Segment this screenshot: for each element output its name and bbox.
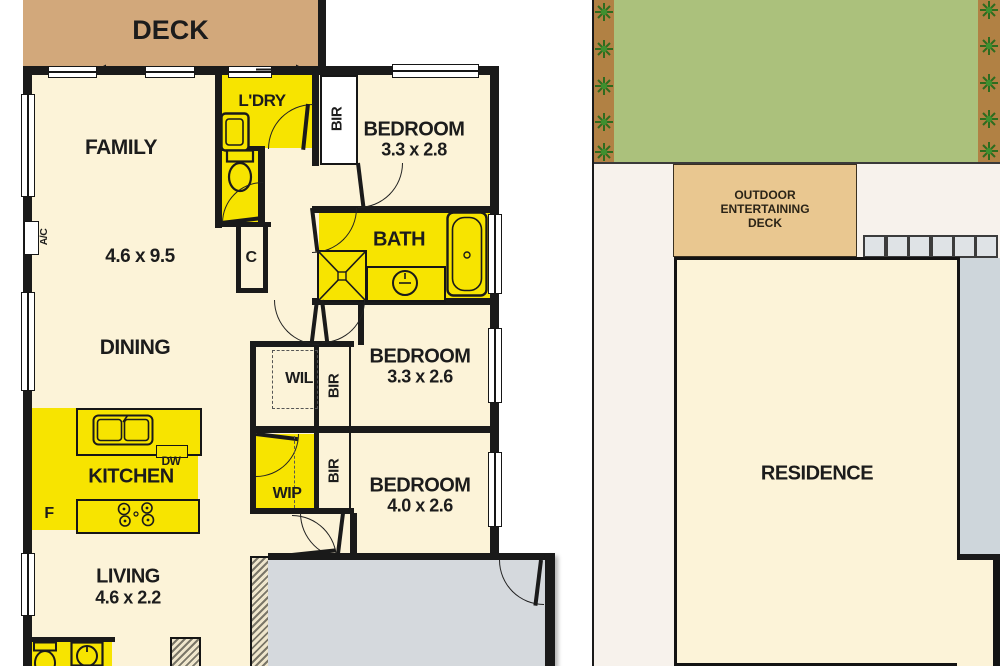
bottom-toilet-icon <box>30 641 60 666</box>
stepping-stone <box>908 235 931 258</box>
bedroom3-dims: 4.0 x 2.6 <box>387 496 453 517</box>
bedroom2-window <box>488 328 502 403</box>
lawn-area <box>594 0 1000 163</box>
shower-x-icon <box>319 252 365 300</box>
stepping-stone <box>863 235 886 258</box>
stepping-stone <box>953 235 976 258</box>
outdoor-deck-line3: DECK <box>673 216 857 230</box>
robe1-label: BIR <box>329 107 346 131</box>
dishwasher-label: DW <box>162 454 181 468</box>
shower-box <box>317 250 367 302</box>
linen-label: WIL <box>285 370 313 388</box>
wall-robe2-front <box>349 343 351 429</box>
outdoor-deck-line1: OUTDOOR <box>673 188 857 202</box>
bath-label: BATH <box>373 229 425 252</box>
family-window <box>21 94 35 197</box>
wall-pantry-right <box>314 429 319 513</box>
plants-left-icon <box>593 0 615 163</box>
wall-bed2-bed3 <box>250 426 497 433</box>
residence-label: RESIDENCE <box>761 463 873 486</box>
bedroom1-window <box>392 64 479 78</box>
closet-label: C <box>245 249 256 267</box>
bedroom3-label: BEDROOM <box>370 475 471 498</box>
vanity-basin-icon <box>390 268 420 298</box>
residence-extension <box>957 560 993 666</box>
deck-label-line2: DECK <box>23 8 318 52</box>
entertaining-deck-label: ENTERTAINING DECK <box>23 0 318 52</box>
bedroom3-window <box>488 452 502 527</box>
wall-deck-right <box>318 0 326 70</box>
bath-window <box>488 214 502 294</box>
living-window <box>21 553 35 616</box>
living-label: LIVING <box>96 566 160 589</box>
laundry-trough-icon <box>220 112 250 152</box>
siteplan-panel: OUTDOOR ENTERTAINING DECK RESIDENCE <box>592 0 1000 666</box>
washer-icon <box>70 641 104 666</box>
residence-extension-right-wall <box>993 560 1000 666</box>
wall-bed3-hall <box>350 513 357 556</box>
bedroom2-dims: 3.3 x 2.6 <box>387 367 453 388</box>
cooktop-icon <box>114 501 166 528</box>
laundry-label: L'DRY <box>238 91 285 111</box>
wall-laundry-right <box>312 66 319 166</box>
wall-porch-right <box>545 553 555 666</box>
living-dims: 4.6 x 2.2 <box>95 588 161 609</box>
residence-block <box>674 257 960 666</box>
wall-closet-right <box>263 227 268 291</box>
stepping-stone <box>931 235 954 258</box>
family-dims: 4.6 x 9.5 <box>105 246 174 268</box>
driveway <box>960 258 1000 556</box>
ac-label: A/C <box>38 229 50 246</box>
wall-porch-top <box>268 553 555 560</box>
stepping-stone <box>975 235 998 258</box>
ac-unit <box>24 221 39 255</box>
slider-arrow-left-icon <box>96 63 142 76</box>
slider-panel-1 <box>48 66 97 78</box>
robe2-label: BIR <box>326 374 343 398</box>
plants-right-icon <box>978 0 1000 163</box>
pantry-label: WIP <box>273 485 302 503</box>
family-label: FAMILY <box>85 136 157 160</box>
outdoor-deck-line2: ENTERTAINING <box>673 202 857 216</box>
dining-label: DINING <box>100 336 171 360</box>
floorplan-screenshot: ENTERTAINING DECK <box>0 0 1000 666</box>
kitchen-label: KITCHEN <box>88 466 173 489</box>
kitchen-sink-icon <box>92 414 154 446</box>
stepping-stone <box>886 235 909 258</box>
fridge-label: F <box>44 505 53 523</box>
dining-window <box>21 292 35 391</box>
wall-robe3-front <box>349 431 351 511</box>
wall-closet-left <box>236 227 241 291</box>
pier-bottom <box>170 637 201 666</box>
bedroom1-label: BEDROOM <box>364 119 465 142</box>
outdoor-deck-label: OUTDOOR ENTERTAINING DECK <box>673 188 857 230</box>
robe3-label: BIR <box>326 459 343 483</box>
bedroom2-label: BEDROOM <box>370 346 471 369</box>
floorplan-panel: ENTERTAINING DECK <box>0 0 592 666</box>
bedroom1-dims: 3.3 x 2.8 <box>381 140 447 161</box>
slider-arrow-right-icon <box>256 63 306 76</box>
bathtub-icon <box>446 211 488 297</box>
wall-closet-bottom <box>236 288 268 293</box>
deck-label-line1: ENTERTAINING <box>23 0 318 8</box>
slider-panel-2 <box>145 66 195 78</box>
